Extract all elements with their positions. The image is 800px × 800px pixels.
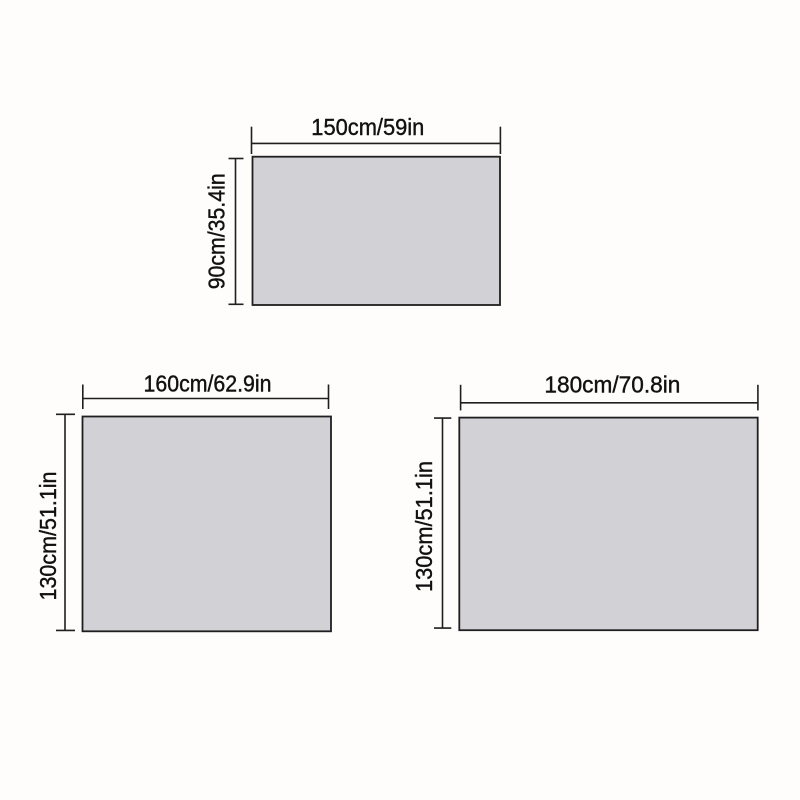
svg-text:150cm/59in: 150cm/59in [311,114,424,140]
svg-text:160cm/62.9in: 160cm/62.9in [144,370,272,396]
svg-text:130cm/51.1in: 130cm/51.1in [411,461,437,592]
svg-text:130cm/51.1in: 130cm/51.1in [35,472,61,601]
svg-text:90cm/35.4in: 90cm/35.4in [204,173,230,289]
svg-text:180cm/70.8in: 180cm/70.8in [544,371,680,397]
